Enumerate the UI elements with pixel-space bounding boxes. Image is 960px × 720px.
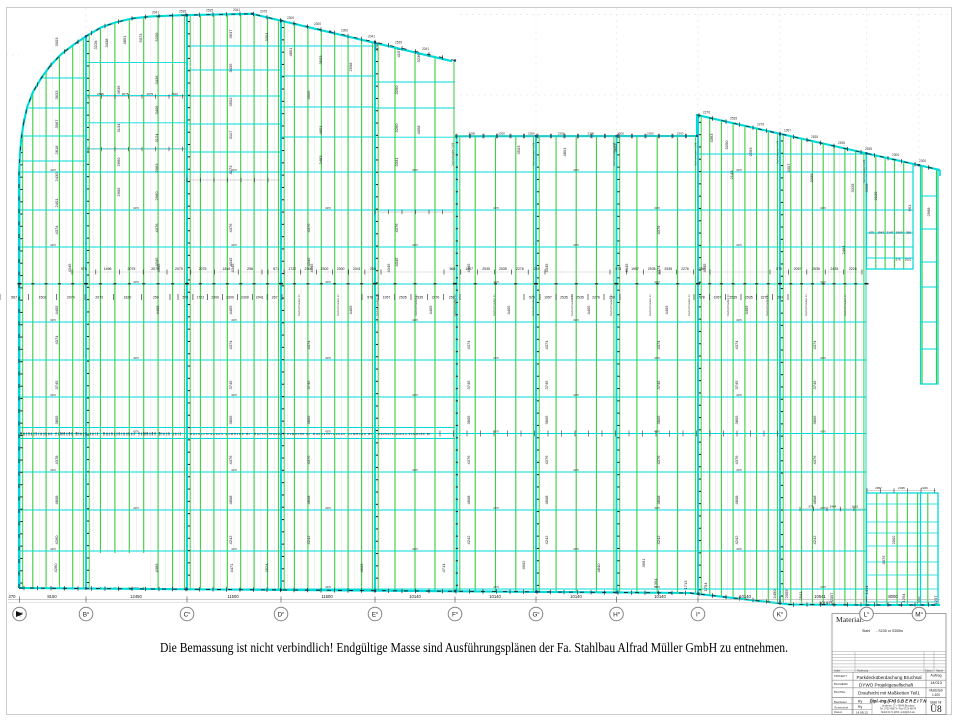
svg-text:4157: 4157: [396, 48, 401, 58]
svg-text:4376: 4376: [133, 206, 139, 210]
svg-text:2041: 2041: [353, 267, 361, 271]
svg-text:1722: 1722: [196, 296, 204, 300]
svg-text:2535: 2535: [648, 267, 656, 271]
svg-text:3805: 3805: [54, 415, 59, 425]
svg-text:4376: 4376: [325, 280, 331, 284]
svg-text:Dachschrauben 2xM8x80 Blech ve: Dachschrauben 2xM8x80 Blech verz.: [103, 432, 183, 436]
svg-text:4242: 4242: [544, 535, 549, 545]
svg-text:4808: 4808: [812, 495, 817, 505]
svg-text:576: 576: [895, 258, 900, 262]
svg-text:2483: 2483: [318, 155, 323, 165]
svg-text:4625: 4625: [359, 563, 364, 573]
svg-text:1414: 1414: [864, 585, 869, 595]
svg-text:2276: 2276: [516, 267, 524, 271]
svg-text:Auftrag: Auftrag: [931, 674, 942, 678]
svg-text:4376: 4376: [306, 223, 311, 233]
svg-text:1957: 1957: [714, 296, 722, 300]
svg-text:3290: 3290: [724, 140, 729, 150]
svg-text:2147: 2147: [887, 231, 894, 235]
svg-text:Dachschrauben 2x: Dachschrauben 2x: [843, 294, 847, 316]
svg-text:4376: 4376: [133, 506, 139, 510]
svg-text:2535: 2535: [179, 9, 186, 13]
svg-text:4374: 4374: [734, 340, 739, 350]
svg-text:4374: 4374: [544, 340, 549, 350]
svg-text:2075: 2075: [122, 92, 129, 96]
svg-text:4242: 4242: [734, 535, 739, 545]
svg-text:D“: D“: [278, 611, 285, 618]
svg-text:4376: 4376: [50, 393, 56, 397]
svg-text:4376: 4376: [50, 243, 56, 247]
svg-text:3805: 3805: [228, 415, 233, 425]
svg-text:4851: 4851: [122, 35, 127, 45]
svg-text:3003: 3003: [54, 37, 59, 47]
svg-text:4345: 4345: [156, 263, 161, 273]
svg-text:2535: 2535: [499, 267, 507, 271]
svg-text:Dachschrauben 2x: Dachschrauben 2x: [765, 294, 769, 316]
svg-text:2464: 2464: [830, 505, 837, 509]
svg-text:4376: 4376: [228, 455, 233, 465]
svg-text:8150: 8150: [47, 594, 57, 599]
svg-text:Mobil 0171 4453 • info@ib-b.de: Mobil 0171 4453 • info@ib-b.de: [881, 711, 915, 714]
svg-text:4260: 4260: [54, 535, 59, 545]
svg-text:14/013: 14/013: [930, 681, 942, 685]
svg-text:4376: 4376: [412, 168, 418, 172]
svg-text:2041: 2041: [368, 35, 375, 39]
svg-text:3805: 3805: [656, 415, 661, 425]
svg-text:10541: 10541: [814, 594, 826, 599]
svg-text:2079: 2079: [67, 296, 75, 300]
svg-text:Datum: Datum: [834, 710, 843, 714]
svg-text:3406: 3406: [154, 105, 159, 115]
svg-text:2300: 2300: [498, 132, 505, 136]
svg-text:2041: 2041: [256, 296, 264, 300]
svg-text:2075: 2075: [175, 267, 183, 271]
svg-text:4376: 4376: [50, 547, 56, 551]
svg-text:PROJEKT: PROJEKT: [834, 674, 847, 678]
svg-text:5209: 5209: [154, 32, 159, 42]
svg-text:4058: 4058: [416, 125, 421, 135]
svg-text:4808: 4808: [544, 495, 549, 505]
svg-text:11500: 11500: [321, 594, 333, 599]
svg-text:2435: 2435: [831, 267, 839, 271]
svg-text:Dachschrauben 2x: Dachschrauben 2x: [492, 294, 496, 316]
svg-text:Dachschrauben 2x: Dachschrauben 2x: [531, 294, 535, 316]
svg-text:Dachschrauben 2x: Dachschrauben 2x: [570, 294, 574, 316]
svg-text:578: 578: [367, 296, 373, 300]
svg-text:4376: 4376: [412, 243, 418, 247]
svg-text:259: 259: [534, 267, 540, 271]
svg-text:1502: 1502: [39, 296, 47, 300]
svg-text:4376: 4376: [325, 356, 331, 360]
svg-text:1:100: 1:100: [932, 693, 940, 697]
svg-text:3503: 3503: [613, 143, 618, 153]
svg-text:11500: 11500: [227, 594, 239, 599]
svg-text:2276: 2276: [592, 296, 600, 300]
svg-text:10140: 10140: [739, 594, 751, 599]
svg-text:Dachschrauben 2x: Dachschrauben 2x: [609, 294, 613, 316]
svg-text:3124: 3124: [154, 133, 159, 143]
svg-text:4376: 4376: [231, 318, 237, 322]
svg-text:DYWO Projektgesellschaft: DYWO Projektgesellschaft: [859, 683, 914, 688]
svg-text:4376: 4376: [325, 506, 331, 510]
svg-text:4376: 4376: [231, 393, 237, 397]
svg-text:4376: 4376: [736, 168, 742, 172]
svg-text:4376: 4376: [493, 356, 499, 360]
svg-text:4808: 4808: [54, 495, 59, 505]
svg-text:4376: 4376: [306, 455, 311, 465]
svg-text:4345: 4345: [466, 263, 471, 273]
svg-text:2125: 2125: [873, 191, 878, 201]
svg-text:Dachschrauben 2x: Dachschrauben 2x: [375, 294, 379, 316]
svg-text:Dachschrauben 2xM8: Dachschrauben 2xM8: [863, 159, 866, 183]
svg-text:3331: 3331: [394, 157, 399, 167]
svg-text:1722: 1722: [288, 267, 296, 271]
svg-text:1909: 1909: [896, 231, 903, 235]
svg-text:Dachschrauben 2xM8: Dachschrauben 2xM8: [452, 142, 455, 166]
svg-text:4840: 4840: [596, 563, 601, 573]
svg-text:961: 961: [907, 204, 912, 211]
svg-text:578: 578: [182, 296, 188, 300]
svg-text:10140: 10140: [570, 594, 582, 599]
svg-text:4369: 4369: [154, 563, 159, 573]
svg-text:Blatt Nr: Blatt Nr: [930, 701, 942, 705]
svg-text:2300: 2300: [321, 267, 329, 271]
svg-text:2300: 2300: [341, 28, 348, 32]
svg-text:Dachschrauben 2xM8: Dachschrauben 2xM8: [695, 142, 698, 166]
svg-text:3304: 3304: [264, 32, 269, 42]
svg-text:2075: 2075: [147, 92, 154, 96]
svg-text:4376: 4376: [734, 455, 739, 465]
svg-text:2598: 2598: [348, 62, 353, 72]
svg-text:K“: K“: [777, 611, 783, 618]
svg-text:4273: 4273: [228, 165, 233, 175]
svg-text:3328: 3328: [850, 183, 855, 193]
svg-text:2535: 2535: [745, 296, 753, 300]
svg-text:4242: 4242: [812, 535, 817, 545]
svg-text:4376: 4376: [154, 223, 159, 233]
svg-text:3335: 3335: [809, 173, 814, 183]
svg-text:579: 579: [776, 267, 782, 271]
svg-text:C“: C“: [184, 611, 191, 618]
svg-text:2057: 2057: [794, 267, 802, 271]
svg-text:1542: 1542: [877, 231, 884, 235]
svg-text:3636: 3636: [116, 85, 121, 95]
svg-text:1254: 1254: [901, 593, 906, 603]
svg-text:Dipl.-Ing.(FH) S.B E R E I T N: Dipl.-Ing.(FH) S.B E R E I T N: [870, 699, 928, 704]
svg-text:Bearbeiter: Bearbeiter: [834, 700, 847, 704]
svg-text:Parkdecküberdachung Bruchsal: Parkdecküberdachung Bruchsal: [856, 675, 921, 680]
svg-text:3438: 3438: [104, 38, 109, 48]
svg-text:2075: 2075: [260, 10, 267, 14]
svg-text:3290: 3290: [394, 85, 399, 95]
svg-text:2435: 2435: [898, 486, 905, 490]
svg-text:8000: 8000: [888, 594, 898, 599]
svg-text:Dachschrauben 2x: Dachschrauben 2x: [726, 294, 730, 316]
svg-text:2535: 2535: [482, 267, 490, 271]
svg-text:Dachschrauben 2x: Dachschrauben 2x: [297, 294, 301, 316]
svg-text:3503: 3503: [318, 55, 323, 65]
svg-text:10140: 10140: [409, 594, 421, 599]
svg-text:2535: 2535: [838, 141, 845, 145]
svg-text:4376: 4376: [573, 393, 579, 397]
svg-text:2300: 2300: [617, 132, 624, 136]
svg-text:10140: 10140: [654, 594, 666, 599]
svg-text:3117: 3117: [228, 130, 233, 139]
svg-text:3260: 3260: [394, 123, 399, 133]
svg-text:2300: 2300: [226, 296, 234, 300]
svg-text:1354: 1354: [653, 578, 658, 588]
svg-text:3637: 3637: [228, 29, 233, 39]
svg-text:4808: 4808: [656, 495, 661, 505]
svg-text:4374: 4374: [656, 265, 661, 275]
svg-text:4242: 4242: [228, 535, 233, 545]
svg-text:2905: 2905: [116, 187, 121, 197]
svg-text:4376: 4376: [573, 547, 579, 551]
svg-text:4345: 4345: [624, 263, 629, 273]
svg-text:4405: 4405: [586, 305, 591, 315]
svg-text:Dachschrauben 2xM8x80 Blech ve: Dachschrauben 2xM8x80 Blech verz.: [20, 432, 100, 436]
svg-text:Dachschrauben 2x: Dachschrauben 2x: [804, 294, 808, 316]
svg-text:2300: 2300: [892, 153, 899, 157]
svg-text:2041: 2041: [422, 47, 429, 51]
svg-text:2588: 2588: [97, 92, 104, 96]
svg-text:2968: 2968: [926, 207, 931, 217]
svg-text:4345: 4345: [230, 263, 235, 273]
svg-text:2300: 2300: [647, 132, 654, 136]
svg-text:4956: 4956: [306, 90, 311, 100]
svg-text:3503: 3503: [516, 145, 521, 155]
svg-text:1816: 1816: [171, 92, 178, 96]
svg-text:1621: 1621: [852, 505, 859, 509]
svg-text:14.08.13: 14.08.13: [856, 710, 868, 714]
svg-text:E“: E“: [372, 611, 378, 618]
svg-text:4801: 4801: [562, 147, 567, 157]
svg-text:2041: 2041: [233, 8, 240, 12]
svg-text:Dachschrauben 2x: Dachschrauben 2x: [336, 294, 340, 316]
svg-text:578: 578: [615, 267, 621, 271]
svg-text:2535: 2535: [395, 41, 402, 45]
svg-text:4376: 4376: [394, 223, 399, 233]
svg-text:4376: 4376: [50, 318, 56, 322]
svg-text:2300: 2300: [558, 132, 565, 136]
svg-text:Dachschrauben 2xM8: Dachschrauben 2xM8: [777, 140, 780, 164]
svg-text:Gezeichnet: Gezeichnet: [834, 706, 848, 710]
svg-text:571: 571: [273, 267, 279, 271]
svg-text:3228: 3228: [93, 40, 98, 50]
svg-text:4524: 4524: [264, 563, 269, 573]
svg-text:4376: 4376: [493, 585, 499, 589]
svg-text:2798: 2798: [374, 42, 379, 52]
svg-text:Stahl - S235 or S355w: Stahl - S235 or S355w: [862, 629, 903, 633]
svg-text:2535: 2535: [206, 9, 213, 13]
svg-text:4376: 4376: [412, 318, 418, 322]
svg-text:4405: 4405: [664, 305, 669, 315]
svg-text:4376: 4376: [654, 206, 660, 210]
svg-text:2143: 2143: [729, 170, 734, 180]
svg-text:4376: 4376: [493, 280, 499, 284]
svg-text:578: 578: [699, 296, 705, 300]
svg-text:2535: 2535: [865, 147, 872, 151]
svg-text:4363: 4363: [709, 133, 714, 143]
svg-text:B“: B“: [83, 611, 89, 618]
svg-text:Dachschrauben 2x: Dachschrauben 2x: [687, 294, 691, 316]
svg-text:4376: 4376: [412, 547, 418, 551]
svg-text:Dachschrauben 2x: Dachschrauben 2x: [453, 294, 457, 316]
svg-text:2300: 2300: [314, 22, 321, 26]
svg-text:Draufsicht mit Maßketten Teil1: Draufsicht mit Maßketten Teil1: [858, 691, 920, 696]
svg-text:4376: 4376: [325, 585, 331, 589]
svg-text:4376: 4376: [736, 393, 742, 397]
svg-text:4808: 4808: [306, 495, 311, 505]
svg-text:201975: 201975: [819, 601, 834, 606]
svg-text:4376: 4376: [133, 280, 139, 284]
svg-text:1621: 1621: [905, 258, 912, 262]
svg-text:4801: 4801: [288, 47, 293, 57]
svg-text:2535: 2535: [811, 135, 818, 139]
svg-text:4376: 4376: [493, 506, 499, 510]
svg-text:1820: 1820: [124, 296, 132, 300]
svg-text:4405: 4405: [54, 305, 59, 315]
svg-text:4374: 4374: [656, 340, 661, 350]
svg-text:2300: 2300: [211, 296, 219, 300]
svg-text:4902: 4902: [521, 560, 526, 570]
svg-text:2059: 2059: [784, 589, 789, 599]
svg-text:3805: 3805: [466, 415, 471, 425]
svg-text:3328: 3328: [864, 183, 869, 193]
svg-text:2276: 2276: [432, 296, 440, 300]
svg-text:4376: 4376: [50, 168, 56, 172]
svg-text:L“: L“: [864, 611, 870, 618]
svg-text:Ry: Ry: [858, 705, 862, 709]
svg-text:4376: 4376: [412, 393, 418, 397]
svg-text:4405: 4405: [348, 305, 353, 315]
svg-text:5073: 5073: [138, 33, 143, 43]
svg-text:I“: I“: [696, 611, 700, 618]
svg-text:4376: 4376: [654, 356, 660, 360]
svg-text:4376: 4376: [133, 356, 139, 360]
svg-text:4374: 4374: [306, 340, 311, 350]
svg-text:4345: 4345: [544, 263, 549, 273]
svg-text:4376: 4376: [820, 356, 826, 360]
svg-text:3561: 3561: [641, 558, 646, 568]
svg-text:4801: 4801: [318, 125, 323, 135]
svg-text:4405: 4405: [744, 305, 749, 315]
svg-text:259: 259: [153, 296, 159, 300]
svg-text:1713: 1713: [683, 580, 688, 590]
svg-text:2300: 2300: [469, 132, 476, 136]
svg-text:2535: 2535: [576, 296, 584, 300]
svg-text:2226: 2226: [849, 267, 857, 271]
svg-text:4376: 4376: [231, 243, 237, 247]
svg-text:2960: 2960: [154, 191, 159, 201]
svg-text:4345: 4345: [67, 263, 72, 273]
svg-text:4808: 4808: [734, 495, 739, 505]
svg-text:4376: 4376: [656, 225, 661, 235]
svg-text:3805: 3805: [734, 415, 739, 425]
svg-text:568: 568: [449, 267, 455, 271]
svg-text:1794: 1794: [703, 582, 708, 592]
svg-text:Ü8: Ü8: [930, 703, 942, 715]
svg-text:F“: F“: [452, 611, 458, 618]
svg-text:2276: 2276: [703, 110, 710, 114]
svg-text:4376: 4376: [820, 280, 826, 284]
svg-text:1957: 1957: [631, 267, 639, 271]
svg-text:2660: 2660: [116, 157, 121, 167]
svg-text:4376: 4376: [573, 468, 579, 472]
svg-text:4405: 4405: [506, 305, 511, 315]
svg-text:4307: 4307: [786, 163, 791, 173]
svg-text:1496: 1496: [104, 267, 112, 271]
svg-text:4405: 4405: [428, 305, 433, 315]
svg-text:4376: 4376: [654, 280, 660, 284]
svg-text:259: 259: [777, 296, 783, 300]
svg-text:3745: 3745: [734, 380, 739, 390]
svg-text:BAUTEIL: BAUTEIL: [834, 690, 846, 694]
svg-text:3503: 3503: [228, 97, 233, 107]
svg-text:3745: 3745: [228, 380, 233, 390]
svg-text:2300: 2300: [337, 267, 345, 271]
svg-text:4376: 4376: [493, 206, 499, 210]
svg-text:3436: 3436: [154, 75, 159, 85]
svg-text:3805: 3805: [306, 415, 311, 425]
svg-text:4471: 4471: [229, 563, 234, 573]
svg-text:3435: 3435: [228, 63, 233, 73]
svg-text:2535: 2535: [812, 267, 820, 271]
svg-text:3745: 3745: [812, 380, 817, 390]
svg-text:4376: 4376: [820, 429, 826, 433]
svg-text:4242: 4242: [306, 535, 311, 545]
svg-text:Dachschrauben 2x: Dachschrauben 2x: [414, 294, 418, 316]
svg-text:4374: 4374: [466, 340, 471, 350]
svg-text:4378: 4378: [54, 455, 59, 465]
svg-text:2300: 2300: [287, 16, 294, 20]
svg-text:4376: 4376: [736, 243, 742, 247]
svg-text:2535: 2535: [560, 296, 568, 300]
svg-text:4345: 4345: [309, 263, 314, 273]
svg-text:4376: 4376: [736, 318, 742, 322]
svg-text:4374: 4374: [54, 225, 59, 235]
svg-text:2300: 2300: [528, 132, 535, 136]
svg-text:2963: 2963: [154, 163, 159, 173]
svg-text:4376: 4376: [812, 455, 817, 465]
svg-text:G“: G“: [532, 611, 539, 618]
svg-text:Dachschrauben 2xM8x80 Bl: Dachschrauben 2xM8x80 Bl: [190, 432, 250, 436]
svg-text:258: 258: [906, 231, 911, 235]
svg-text:2541: 2541: [798, 591, 803, 601]
svg-text:1957: 1957: [784, 129, 791, 133]
svg-text:2300: 2300: [919, 159, 926, 163]
svg-text:3745: 3745: [466, 380, 471, 390]
svg-text:2300: 2300: [588, 132, 595, 136]
svg-text:Dachschrauben 2xM8x80 Bl: Dachschrauben 2xM8x80 Bl: [313, 432, 372, 436]
svg-text:4375: 4375: [881, 555, 886, 565]
svg-text:3805: 3805: [812, 415, 817, 425]
svg-text:2535: 2535: [730, 117, 737, 121]
svg-text:2401: 2401: [54, 198, 59, 208]
svg-text:2276: 2276: [757, 123, 764, 127]
svg-text:259: 259: [370, 267, 376, 271]
svg-text:2818: 2818: [54, 145, 59, 155]
svg-text:12450: 12450: [130, 594, 142, 599]
svg-text:Maßstab: Maßstab: [929, 689, 942, 693]
svg-text:3745: 3745: [54, 380, 59, 390]
svg-text:4374: 4374: [812, 340, 817, 350]
svg-text:BAUHERR: BAUHERR: [834, 682, 848, 686]
svg-text:4376: 4376: [544, 455, 549, 465]
svg-text:4260: 4260: [53, 563, 58, 573]
svg-text:270: 270: [9, 594, 17, 599]
svg-text:2002: 2002: [891, 535, 896, 545]
